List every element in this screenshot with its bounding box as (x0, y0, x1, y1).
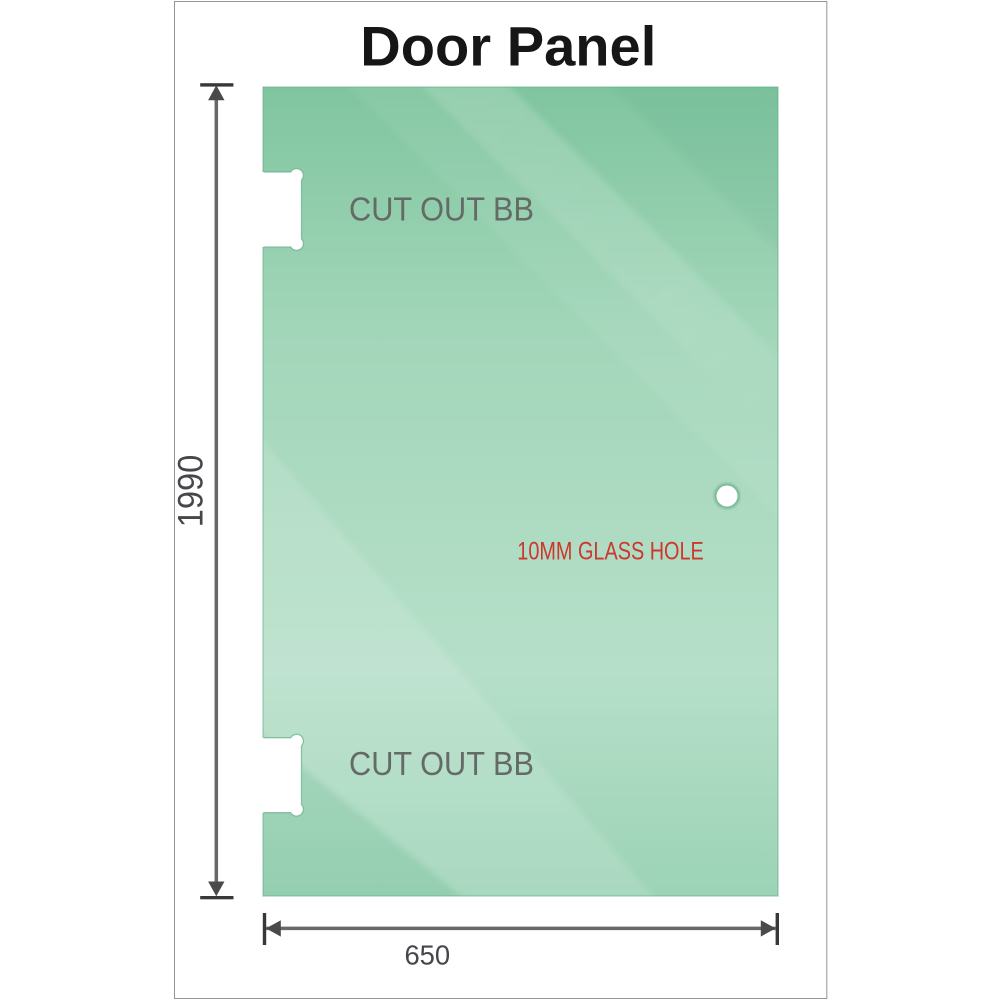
svg-text:Door Panel: Door Panel (360, 16, 656, 78)
svg-text:650: 650 (404, 940, 450, 971)
svg-text:CUT OUT BB: CUT OUT BB (349, 745, 534, 782)
svg-text:CUT OUT BB: CUT OUT BB (349, 191, 534, 228)
svg-text:10MM GLASS HOLE: 10MM GLASS HOLE (517, 538, 704, 566)
svg-text:1990: 1990 (172, 455, 211, 528)
